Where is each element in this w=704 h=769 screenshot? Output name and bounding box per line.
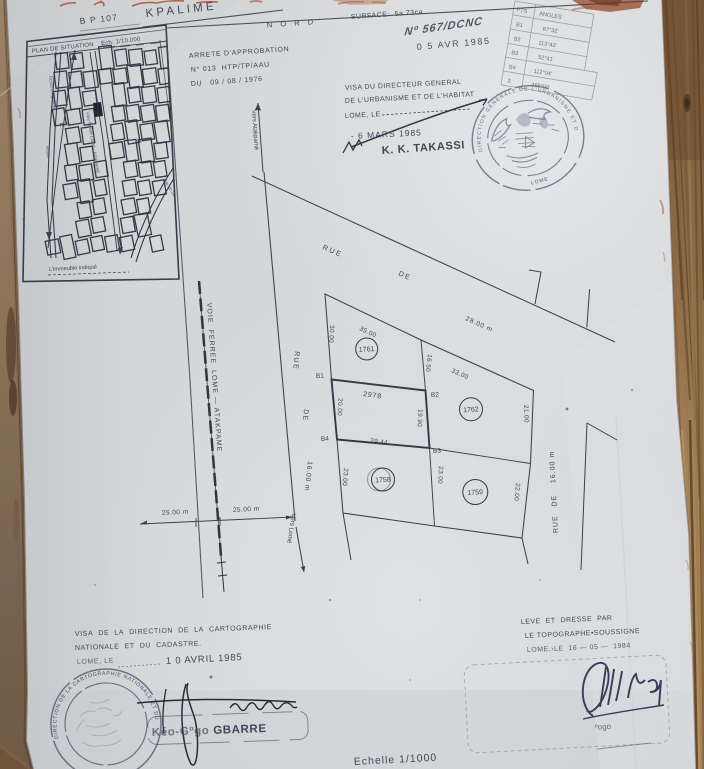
svg-text:B4: B4	[508, 64, 516, 71]
svg-text:1762: 1762	[463, 406, 479, 414]
svg-text:B3: B3	[511, 50, 519, 57]
svg-text:23.00: 23.00	[436, 466, 444, 484]
svg-text:DE: DE	[301, 409, 309, 422]
svg-text:B1: B1	[516, 22, 524, 29]
svg-text:23.00: 23.00	[341, 468, 349, 486]
svg-text:LOME, LE: LOME, LE	[77, 658, 114, 666]
svg-text:25.00 m: 25.00 m	[162, 509, 189, 517]
svg-text:1759: 1759	[467, 489, 483, 497]
svg-text:25.00 m: 25.00 m	[233, 506, 260, 514]
svg-text:21.00: 21.00	[522, 405, 530, 423]
svg-text:ºogo: ºogo	[595, 722, 612, 732]
svg-text:R.A.: R.A.	[60, 122, 71, 129]
svg-text:B4: B4	[321, 436, 330, 443]
svg-text:B2: B2	[431, 392, 440, 399]
svg-text:B1: B1	[316, 373, 325, 380]
svg-text:1758: 1758	[375, 477, 391, 485]
svg-text:19.90: 19.90	[416, 409, 424, 427]
svg-text:20.00: 20.00	[336, 398, 344, 416]
svg-text:30.00: 30.00	[327, 325, 335, 343]
svg-text:B2: B2	[513, 36, 521, 43]
svg-text:1761: 1761	[359, 346, 375, 354]
svg-text:B3: B3	[433, 448, 442, 455]
